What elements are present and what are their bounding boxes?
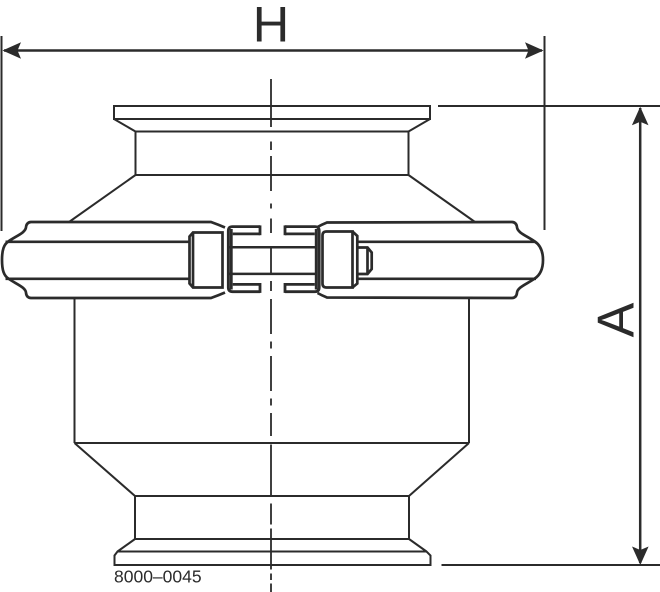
svg-text:H: H <box>253 0 289 53</box>
svg-text:8000–0045: 8000–0045 <box>114 567 202 587</box>
svg-text:A: A <box>588 302 646 337</box>
